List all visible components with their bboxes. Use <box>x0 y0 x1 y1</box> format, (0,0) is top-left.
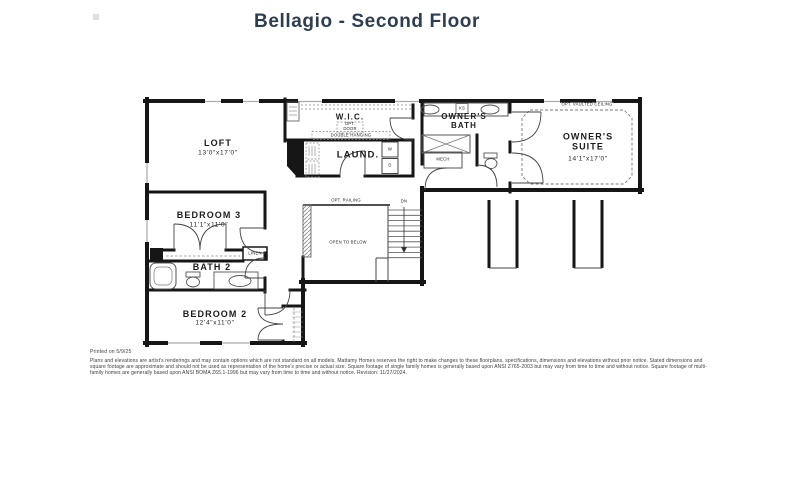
dryer-label: D <box>388 164 391 169</box>
owners-bath-label: OWNER'S BATH <box>441 112 487 130</box>
floorplan-linework <box>0 0 800 500</box>
loft-dims: 13'0"x17'0" <box>198 149 238 156</box>
loft-label: LOFT <box>204 138 232 148</box>
open-to-below-note: OPEN TO BELOW <box>329 241 367 246</box>
opt-vaulted-ceiling-note: OPT. VAULTED CEILING <box>560 103 613 108</box>
opt-door-note: OPT. DOOR <box>343 122 356 132</box>
stairs-dn-label: DN <box>400 200 408 205</box>
floorplan-page: Bellagio - Second Floor <box>0 0 800 500</box>
bedroom3-label: BEDROOM 3 <box>177 210 241 220</box>
bath2-label: BATH 2 <box>193 262 231 272</box>
laundry-label: LAUND. <box>337 151 380 162</box>
owners-suite-dims: 14'1"x17'0" <box>568 155 608 162</box>
linen-label: LINEN <box>248 251 261 256</box>
printed-on-note: Printed on 5/9/25 <box>90 349 131 355</box>
bedroom3-dims: 11'1"x11'0" <box>190 221 229 228</box>
double-hanging-note: DOUBLE HANGING <box>331 133 372 138</box>
opt-railing-note: OPT. RAILING <box>330 198 362 203</box>
mech-label: MECH <box>436 158 449 163</box>
disclaimer-text: Plans and elevations are artist's render… <box>90 358 710 376</box>
washer-label: W <box>388 147 392 152</box>
bedroom2-label: BEDROOM 2 <box>183 309 247 319</box>
knee-space-label: KS <box>459 106 465 111</box>
bedroom2-dims: 12'4"x11'0" <box>195 319 234 326</box>
owners-suite-label: OWNER'S SUITE <box>563 132 613 153</box>
